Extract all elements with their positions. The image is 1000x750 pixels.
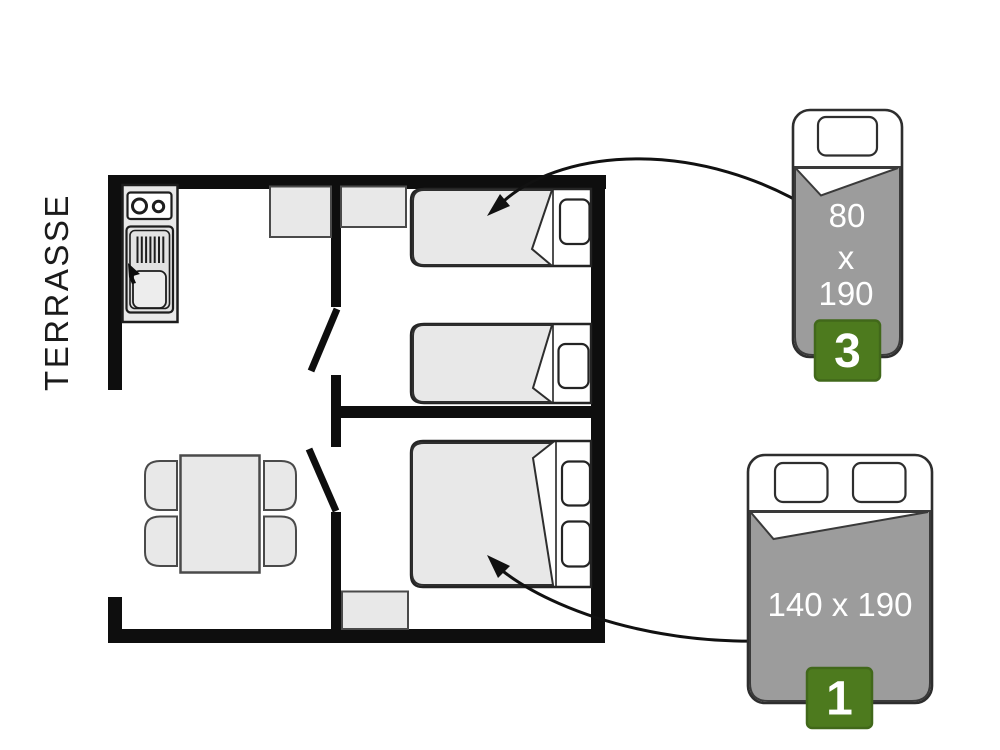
bed-blanket — [413, 190, 552, 265]
dining-set — [145, 456, 296, 573]
terrace-label: TERRASSE — [38, 193, 75, 391]
wall-bottom — [108, 629, 605, 643]
wall-room-divider — [331, 406, 593, 418]
wall-right — [591, 175, 605, 643]
bed-pillow-top — [562, 462, 590, 506]
wall-corridor-upper — [331, 189, 341, 307]
sink-drainer-icon — [138, 237, 164, 264]
chair-left-bottom — [145, 517, 177, 567]
kitchen-block — [123, 185, 178, 322]
double-size: 140 x 190 — [768, 586, 913, 623]
wardrobe-twin-bedroom — [341, 187, 406, 228]
legend-bed-pillow-left — [775, 463, 828, 502]
legend-single-bed: 80 x 190 3 — [793, 110, 902, 381]
single-bed-2 — [411, 324, 591, 403]
single-size-width: 80 — [829, 197, 866, 234]
bed-pillow — [560, 200, 590, 245]
single-size-sep: x — [838, 239, 855, 276]
door-leaf-double-bedroom — [309, 449, 336, 511]
legend-bed-pillow — [818, 117, 877, 156]
floorplan-drawing: 80 x 190 3 140 x 190 1 TERRASSE — [0, 0, 1000, 750]
sink-basin — [133, 271, 166, 308]
single-count: 3 — [834, 325, 861, 378]
stove-burner-left — [133, 199, 147, 213]
wall-entry-stub — [108, 597, 122, 643]
bed-pillow-bottom — [562, 522, 590, 567]
bed-pillow — [559, 344, 589, 388]
chair-left-top — [145, 461, 177, 510]
stove-burner-right — [153, 201, 163, 211]
bed-blanket — [412, 443, 553, 585]
chair-right-top — [264, 461, 296, 510]
shelf-double-bedroom — [342, 592, 408, 630]
floorplan-canvas: 80 x 190 3 140 x 190 1 TERRASSE — [0, 0, 1000, 750]
chair-right-bottom — [264, 517, 296, 567]
wall-left — [108, 175, 122, 390]
double-count: 1 — [826, 673, 853, 726]
dining-table — [181, 456, 260, 573]
single-size-length: 190 — [818, 275, 873, 312]
bed-blanket — [413, 325, 552, 402]
legend-double-bed: 140 x 190 1 — [748, 455, 932, 728]
legend-bed-pillow-right — [853, 463, 906, 502]
wall-corridor-lower — [331, 512, 341, 643]
door-leaf-twin-bedroom — [311, 309, 337, 371]
wardrobe-kitchen-side — [270, 187, 331, 238]
